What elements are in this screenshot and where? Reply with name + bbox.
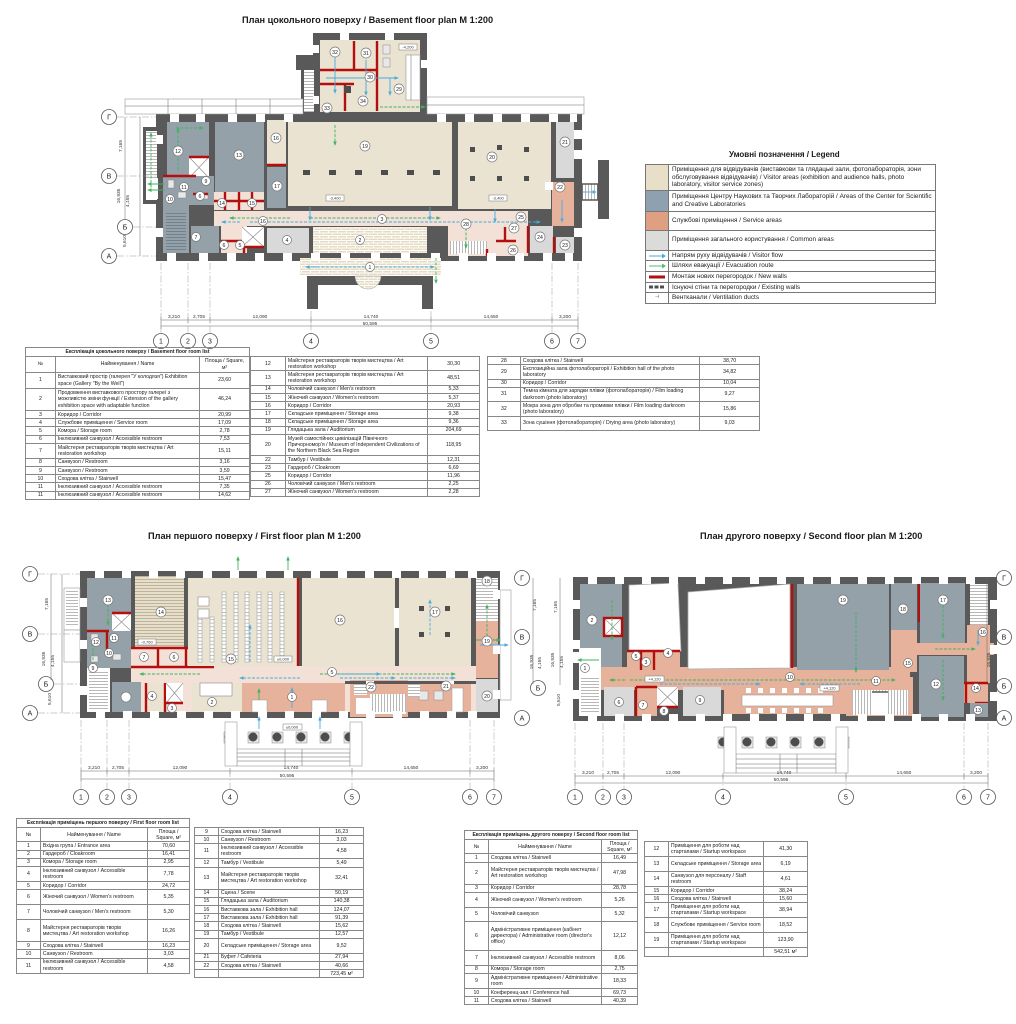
svg-text:14,740: 14,740 [364, 314, 379, 320]
svg-text:13: 13 [105, 598, 111, 604]
svg-text:15: 15 [905, 661, 911, 667]
svg-text:В: В [1002, 635, 1007, 642]
svg-text:19: 19 [362, 144, 368, 150]
svg-text:7,165: 7,165 [44, 598, 50, 610]
svg-text:3: 3 [645, 660, 648, 666]
svg-text:14,740: 14,740 [284, 765, 299, 771]
svg-text:7: 7 [986, 795, 990, 802]
svg-text:12: 12 [175, 149, 181, 155]
svg-text:3: 3 [381, 217, 384, 223]
svg-text:4: 4 [667, 651, 670, 657]
svg-text:1: 1 [79, 795, 83, 802]
svg-text:Б: Б [123, 225, 128, 232]
svg-text:15: 15 [249, 201, 255, 207]
svg-text:3,210: 3,210 [88, 765, 100, 771]
svg-text:3,200: 3,200 [970, 770, 982, 776]
svg-text:23: 23 [562, 243, 568, 249]
svg-text:5: 5 [331, 670, 334, 676]
svg-text:18: 18 [900, 607, 906, 613]
svg-text:50,595: 50,595 [280, 773, 295, 779]
svg-text:20: 20 [489, 155, 495, 161]
svg-text:4: 4 [151, 694, 154, 700]
svg-text:Б: Б [44, 682, 49, 689]
svg-text:12,090: 12,090 [173, 765, 188, 771]
svg-text:8: 8 [663, 709, 666, 715]
svg-text:16: 16 [260, 219, 266, 225]
svg-text:13: 13 [975, 708, 981, 714]
svg-text:10: 10 [106, 651, 112, 657]
svg-text:2: 2 [591, 618, 594, 624]
svg-text:19: 19 [840, 598, 846, 604]
svg-text:50,595: 50,595 [774, 777, 789, 783]
svg-text:21: 21 [443, 684, 449, 690]
svg-text:29: 29 [396, 87, 402, 93]
svg-text:28: 28 [463, 222, 469, 228]
svg-text:18: 18 [484, 579, 490, 585]
svg-text:34: 34 [360, 99, 366, 105]
svg-text:6: 6 [550, 339, 554, 346]
svg-text:В: В [520, 635, 525, 642]
svg-text:12: 12 [933, 682, 939, 688]
svg-text:7: 7 [642, 703, 645, 709]
svg-text:1: 1 [573, 795, 577, 802]
svg-text:2,705: 2,705 [193, 314, 205, 320]
svg-text:16,935: 16,935 [529, 654, 535, 669]
svg-text:4: 4 [309, 339, 313, 346]
svg-text:14: 14 [973, 686, 979, 692]
svg-text:А: А [1002, 716, 1007, 723]
svg-text:2,705: 2,705 [607, 770, 619, 776]
svg-text:1: 1 [291, 695, 294, 701]
svg-text:17: 17 [432, 610, 438, 616]
svg-text:5: 5 [429, 339, 433, 346]
svg-text:26: 26 [510, 248, 516, 254]
svg-text:21: 21 [562, 140, 568, 146]
svg-text:В: В [28, 632, 33, 639]
svg-text:-3,400: -3,400 [492, 196, 504, 201]
svg-text:7: 7 [195, 235, 198, 241]
svg-text:А: А [107, 254, 112, 261]
svg-text:+4,120: +4,120 [823, 686, 836, 691]
svg-text:6: 6 [199, 194, 202, 200]
svg-text:4: 4 [286, 238, 289, 244]
svg-text:7,165: 7,165 [532, 599, 538, 611]
svg-text:4,155: 4,155 [125, 195, 131, 207]
svg-text:7,165: 7,165 [118, 140, 124, 152]
svg-text:16: 16 [337, 618, 343, 624]
svg-text:4: 4 [721, 795, 725, 802]
svg-text:Г: Г [1002, 576, 1006, 583]
svg-text:5,610: 5,610 [47, 693, 53, 705]
svg-text:16,935: 16,935 [986, 652, 992, 667]
svg-text:5,610: 5,610 [556, 694, 562, 706]
svg-text:7: 7 [492, 795, 496, 802]
svg-text:16,935: 16,935 [41, 651, 47, 666]
svg-text:10: 10 [167, 197, 173, 203]
svg-text:50,595: 50,595 [363, 321, 378, 327]
svg-text:6: 6 [618, 700, 621, 706]
svg-text:12,090: 12,090 [666, 770, 681, 776]
svg-text:24: 24 [537, 235, 543, 241]
svg-text:±0,000: ±0,000 [277, 657, 290, 662]
svg-text:12: 12 [93, 640, 99, 646]
svg-text:14,650: 14,650 [484, 314, 499, 320]
svg-text:10: 10 [787, 675, 793, 681]
svg-text:1: 1 [159, 339, 163, 346]
svg-text:Г: Г [28, 572, 32, 579]
svg-text:6: 6 [173, 655, 176, 661]
svg-text:19: 19 [484, 639, 490, 645]
svg-text:3,200: 3,200 [559, 314, 571, 320]
svg-text:+4,120: +4,120 [648, 677, 661, 682]
svg-text:12,090: 12,090 [253, 314, 268, 320]
svg-text:7: 7 [143, 655, 146, 661]
svg-text:11: 11 [873, 679, 878, 685]
svg-text:16,935: 16,935 [116, 188, 122, 203]
svg-text:5: 5 [635, 654, 638, 660]
svg-text:13: 13 [236, 153, 242, 159]
svg-text:-3,400: -3,400 [329, 196, 341, 201]
svg-text:16: 16 [273, 136, 279, 142]
svg-text:14,650: 14,650 [897, 770, 912, 776]
svg-text:9: 9 [205, 179, 208, 185]
svg-text:6: 6 [223, 243, 226, 249]
svg-text:17: 17 [940, 598, 946, 604]
svg-text:5: 5 [844, 795, 848, 802]
svg-text:16: 16 [980, 630, 986, 636]
svg-text:2: 2 [359, 238, 362, 244]
svg-text:3,200: 3,200 [476, 765, 488, 771]
svg-text:25: 25 [518, 215, 524, 221]
svg-text:4,155: 4,155 [50, 655, 56, 667]
svg-text:В: В [107, 174, 112, 181]
svg-text:-4,200: -4,200 [402, 45, 414, 50]
svg-text:2: 2 [186, 339, 190, 346]
svg-text:Г: Г [107, 115, 111, 122]
svg-text:5: 5 [350, 795, 354, 802]
svg-text:7: 7 [576, 339, 580, 346]
svg-text:31: 31 [363, 51, 369, 57]
svg-text:20: 20 [484, 694, 490, 700]
svg-text:7,165: 7,165 [553, 601, 559, 613]
svg-text:±0,000: ±0,000 [286, 725, 299, 730]
svg-text:9: 9 [699, 698, 702, 704]
svg-text:3: 3 [622, 795, 626, 802]
svg-text:3,210: 3,210 [582, 770, 594, 776]
svg-text:14,740: 14,740 [777, 770, 792, 776]
svg-text:5: 5 [239, 243, 242, 249]
svg-text:А: А [520, 716, 525, 723]
svg-text:22: 22 [368, 685, 374, 691]
svg-text:4,155: 4,155 [559, 656, 565, 668]
svg-text:32: 32 [332, 50, 338, 56]
svg-text:1: 1 [584, 666, 587, 672]
svg-text:5,610: 5,610 [122, 235, 128, 247]
svg-text:3,210: 3,210 [168, 314, 180, 320]
svg-text:2: 2 [105, 795, 109, 802]
svg-text:-0,760: -0,760 [141, 640, 153, 645]
svg-text:14,650: 14,650 [404, 765, 419, 771]
svg-text:3: 3 [127, 795, 131, 802]
svg-text:2: 2 [601, 795, 605, 802]
svg-text:Б: Б [1002, 684, 1007, 691]
svg-text:22: 22 [557, 185, 563, 191]
svg-text:1: 1 [369, 265, 372, 271]
svg-text:4: 4 [228, 795, 232, 802]
svg-text:А: А [28, 711, 33, 718]
svg-text:3: 3 [208, 339, 212, 346]
svg-text:Г: Г [520, 576, 524, 583]
svg-text:15: 15 [228, 657, 234, 663]
svg-text:11: 11 [181, 185, 186, 191]
svg-text:11: 11 [111, 636, 116, 642]
svg-text:14: 14 [158, 610, 164, 616]
svg-text:6: 6 [468, 795, 472, 802]
svg-text:3: 3 [171, 706, 174, 712]
svg-text:2: 2 [211, 700, 214, 706]
svg-text:30: 30 [367, 75, 373, 81]
svg-text:33: 33 [324, 106, 330, 112]
svg-text:9: 9 [92, 666, 95, 672]
svg-text:6: 6 [962, 795, 966, 802]
svg-text:17: 17 [274, 184, 280, 190]
svg-text:16,935: 16,935 [550, 652, 556, 667]
svg-text:14: 14 [219, 201, 225, 207]
svg-text:2,705: 2,705 [112, 765, 124, 771]
svg-text:27: 27 [511, 226, 517, 232]
